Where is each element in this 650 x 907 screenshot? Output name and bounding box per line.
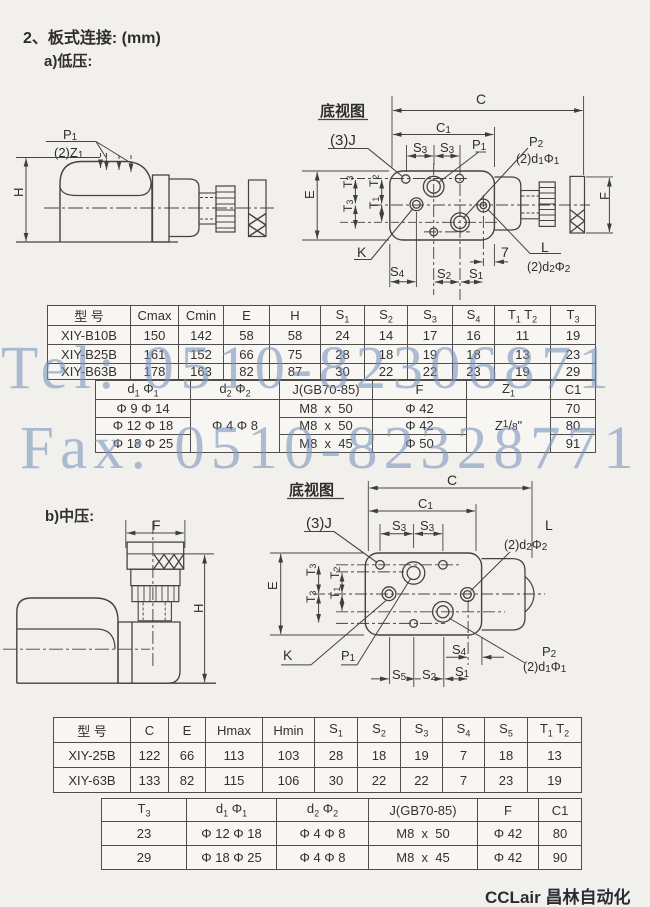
svg-text:(3)J: (3)J [306, 515, 332, 532]
svg-text:T1: T1 [367, 197, 381, 209]
svg-text:H: H [191, 604, 206, 613]
svg-text:L: L [541, 239, 549, 255]
svg-text:C: C [476, 91, 486, 107]
svg-text:K: K [357, 244, 367, 260]
svg-text:E: E [302, 190, 317, 199]
svg-text:P1: P1 [472, 137, 487, 153]
svg-text:E: E [265, 581, 280, 590]
svg-text:S3: S3 [392, 518, 407, 534]
svg-text:L: L [545, 517, 553, 533]
svg-text:(3)J: (3)J [330, 132, 356, 149]
svg-text:T2: T2 [367, 175, 381, 187]
svg-text:T3: T3 [341, 200, 355, 212]
svg-text:S4: S4 [390, 264, 405, 280]
svg-text:S3: S3 [420, 518, 435, 534]
svg-text:S3: S3 [413, 140, 428, 156]
svg-text:S1: S1 [455, 664, 470, 680]
svg-text:T2: T2 [328, 567, 342, 579]
svg-text:T3: T3 [304, 564, 318, 576]
svg-text:F: F [597, 192, 612, 200]
svg-text:S2: S2 [437, 266, 452, 282]
svg-text:C1: C1 [436, 120, 451, 136]
svg-text:S4: S4 [452, 642, 467, 658]
svg-text:P1: P1 [63, 127, 78, 143]
svg-text:P2: P2 [529, 134, 544, 150]
svg-text:7: 7 [501, 244, 509, 260]
svg-text:(2)d2Φ2: (2)d2Φ2 [527, 260, 571, 275]
svg-text:S1: S1 [469, 266, 484, 282]
svg-text:P1: P1 [341, 648, 356, 664]
svg-text:底视图: 底视图 [320, 102, 365, 120]
svg-text:T1: T1 [328, 587, 342, 599]
svg-text:(2)Z1: (2)Z1 [54, 145, 84, 161]
svg-text:H: H [11, 188, 26, 197]
svg-text:T3: T3 [341, 176, 355, 188]
svg-text:S2: S2 [422, 667, 437, 683]
svg-text:(2)d1Φ1: (2)d1Φ1 [523, 660, 567, 675]
svg-text:T3: T3 [304, 591, 318, 603]
svg-text:S5: S5 [392, 667, 407, 683]
svg-text:P2: P2 [542, 644, 557, 660]
svg-text:C1: C1 [418, 496, 433, 512]
svg-text:(2)d2Φ2: (2)d2Φ2 [504, 538, 548, 553]
svg-text:S3: S3 [440, 140, 455, 156]
svg-text:K: K [283, 647, 293, 663]
